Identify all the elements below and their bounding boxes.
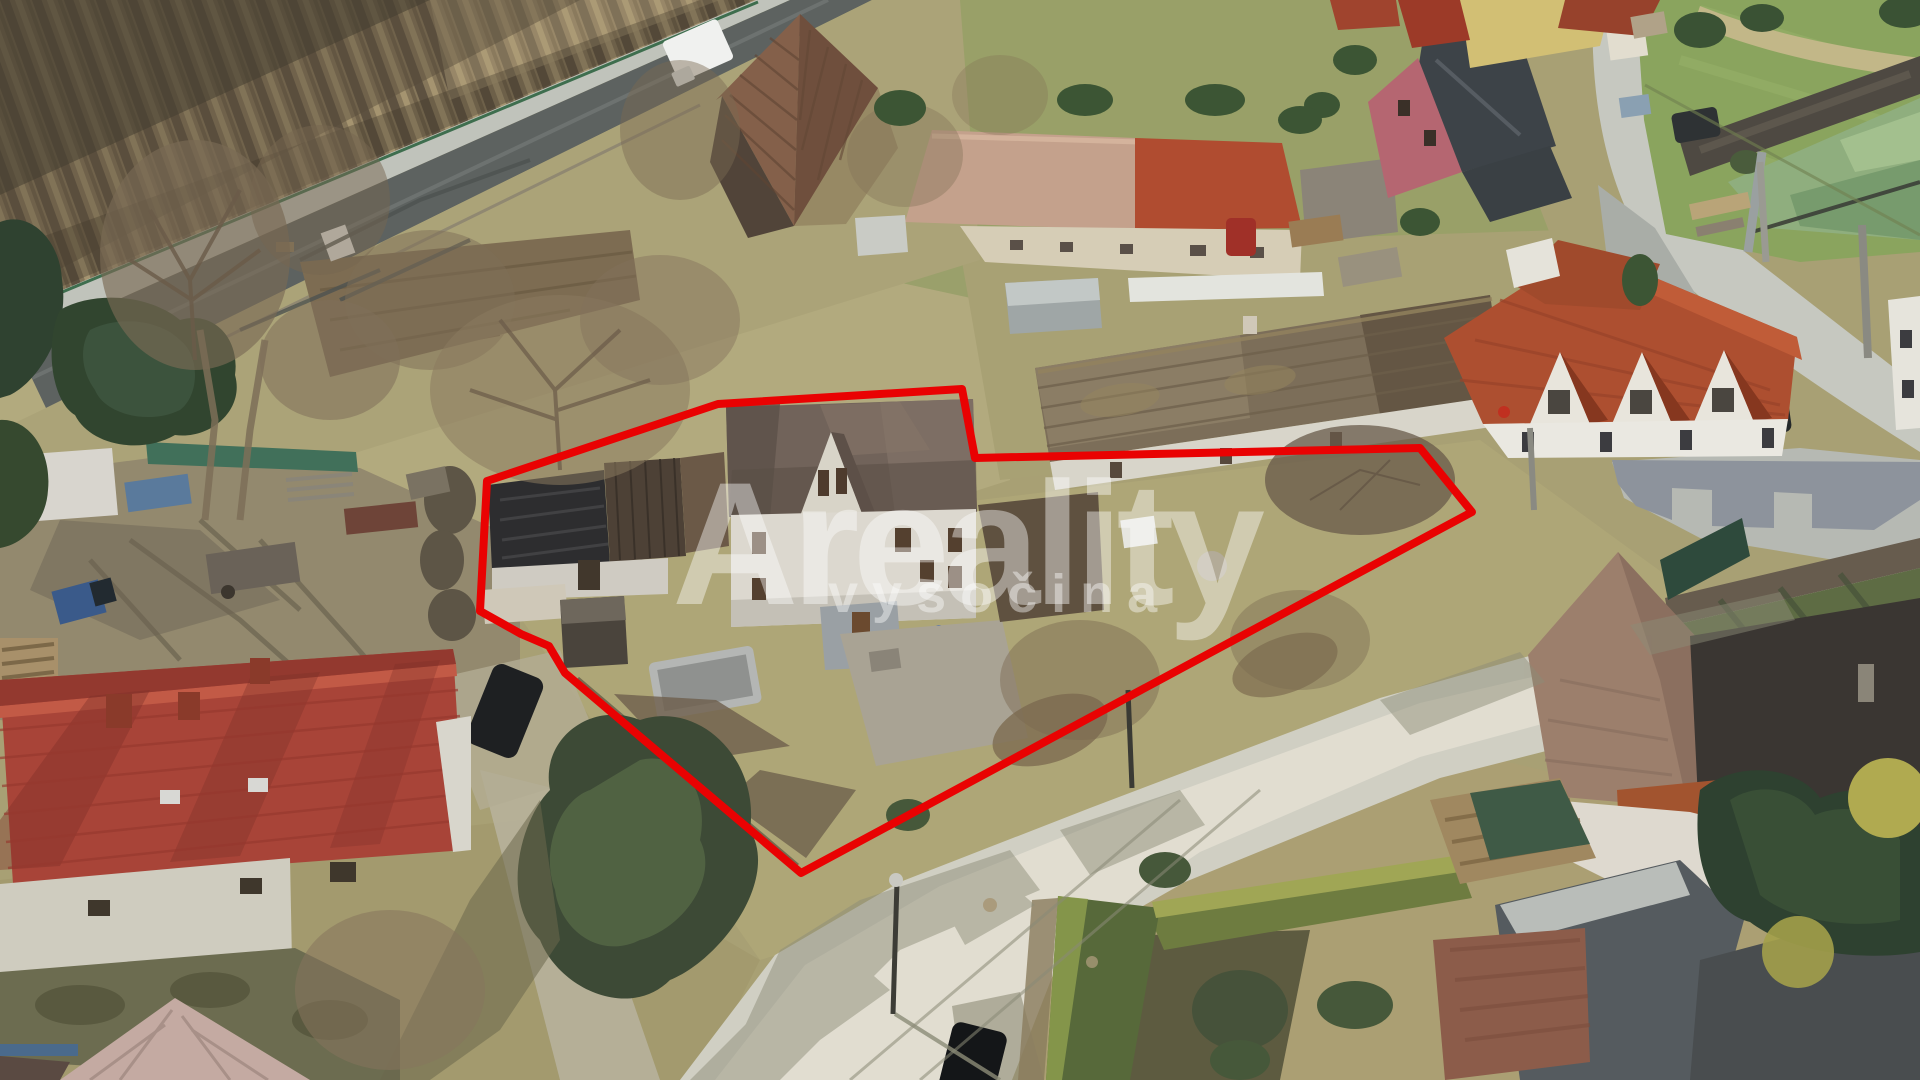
- svg-text:vysočina: vysočina: [828, 564, 1171, 624]
